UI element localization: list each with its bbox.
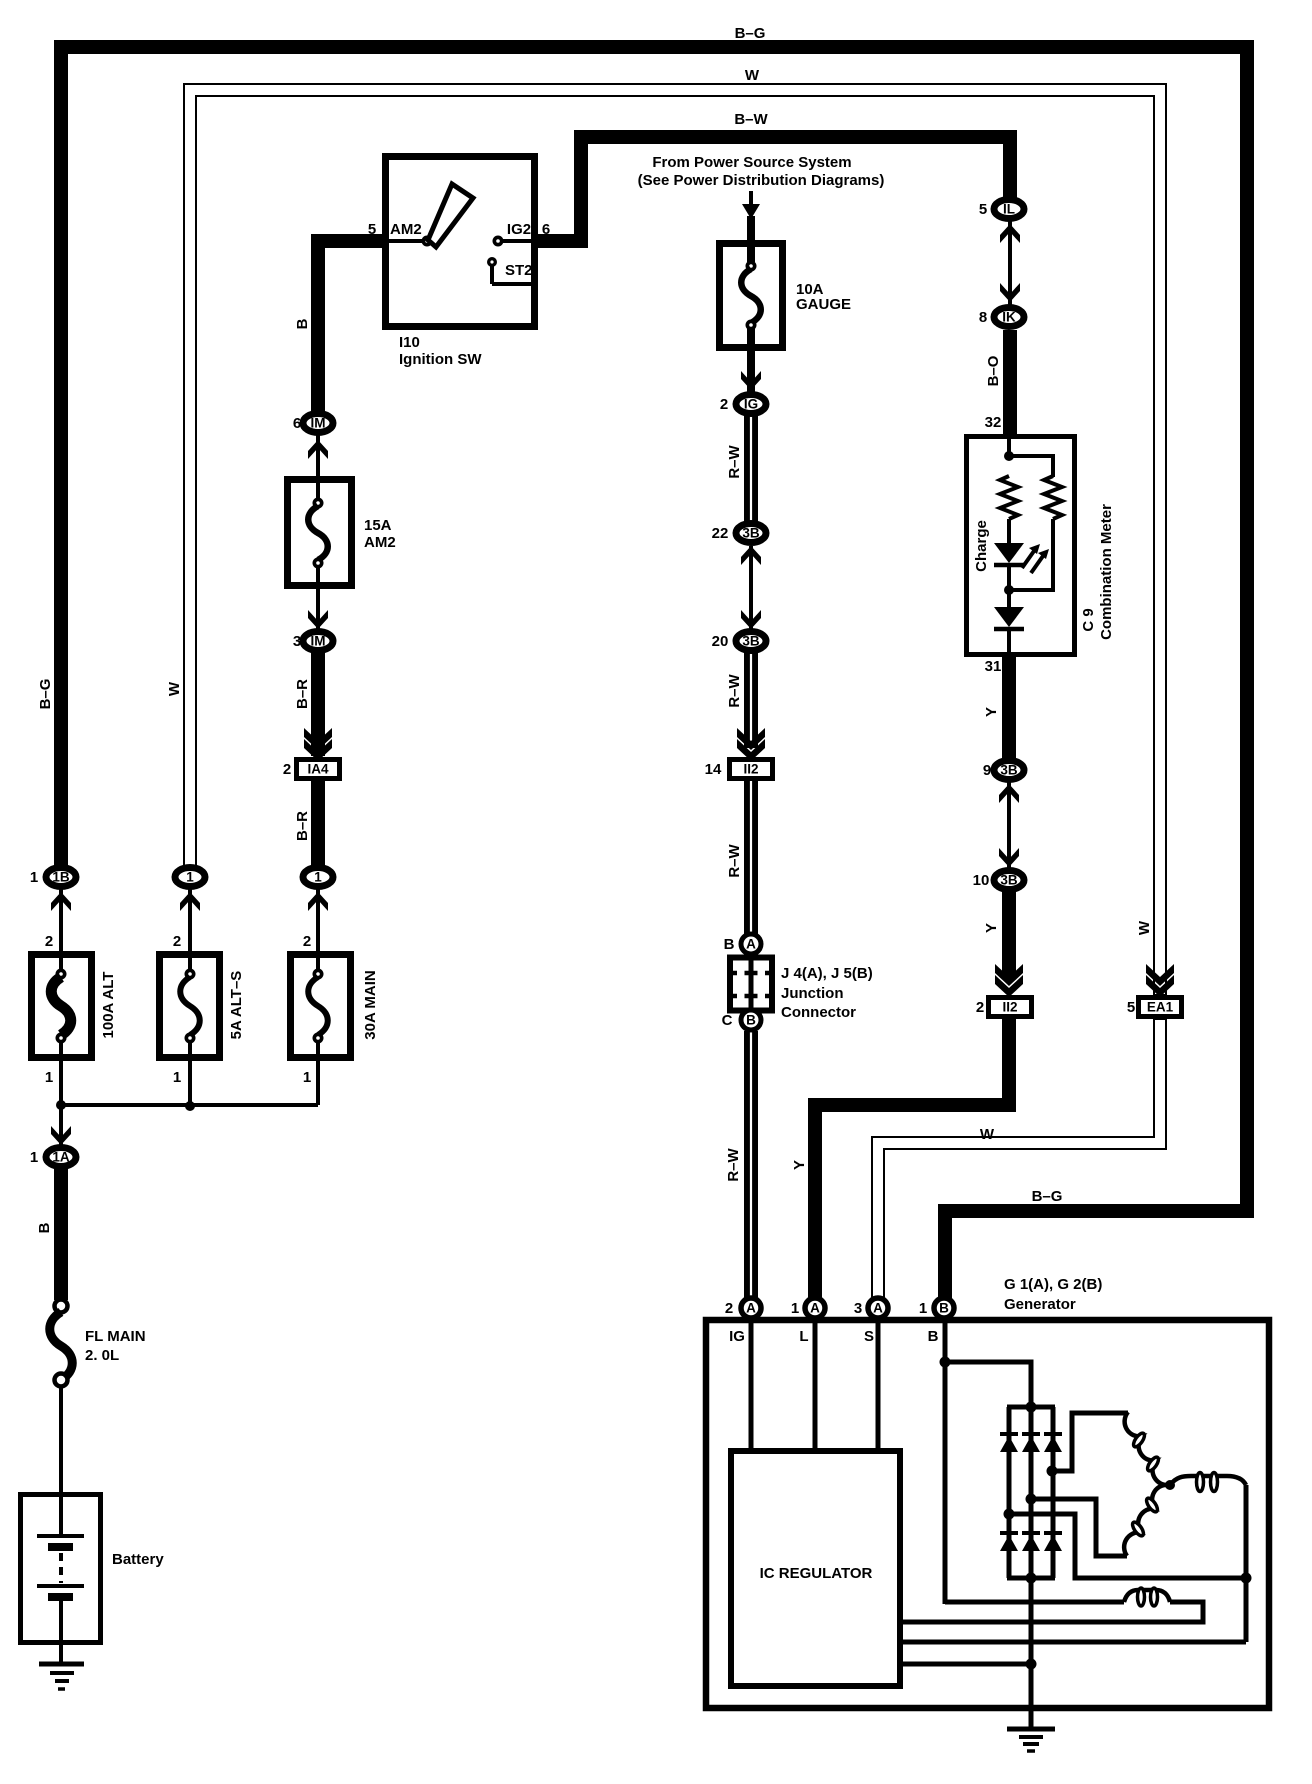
svg-text:1B: 1B	[52, 870, 70, 885]
svg-text:3B: 3B	[1000, 763, 1018, 778]
svg-text:C 9: C 9	[1080, 608, 1097, 631]
svg-text:8: 8	[979, 309, 987, 326]
svg-text:1: 1	[791, 1300, 799, 1317]
svg-text:B–G: B–G	[37, 679, 54, 710]
svg-text:1: 1	[45, 1069, 53, 1086]
svg-text:20: 20	[712, 633, 729, 650]
svg-text:14: 14	[705, 761, 722, 778]
svg-text:C: C	[722, 1012, 733, 1029]
svg-text:2: 2	[976, 999, 984, 1016]
svg-text:W: W	[745, 67, 760, 84]
svg-text:Junction: Junction	[781, 985, 844, 1002]
svg-text:5: 5	[1127, 999, 1135, 1016]
svg-text:B–R: B–R	[294, 679, 311, 709]
svg-text:10: 10	[973, 872, 990, 889]
svg-text:2: 2	[720, 396, 728, 413]
svg-text:9: 9	[983, 762, 991, 779]
svg-text:R–W: R–W	[725, 1147, 742, 1181]
svg-text:EA1: EA1	[1147, 1000, 1174, 1015]
svg-text:B–R: B–R	[294, 811, 311, 841]
svg-text:Combination Meter: Combination Meter	[1098, 504, 1115, 640]
svg-text:B: B	[294, 318, 311, 329]
svg-text:100A ALT: 100A ALT	[100, 972, 117, 1039]
svg-text:ST2: ST2	[505, 262, 533, 279]
svg-text:R–W: R–W	[726, 444, 743, 478]
svg-text:IL: IL	[1003, 202, 1015, 217]
svg-text:A: A	[746, 1301, 756, 1316]
svg-text:W: W	[166, 681, 183, 696]
svg-text:Battery: Battery	[112, 1551, 164, 1568]
svg-text:AM2: AM2	[364, 534, 396, 551]
svg-text:B: B	[939, 1301, 949, 1316]
svg-text:2: 2	[45, 933, 53, 950]
svg-text:II2: II2	[743, 762, 758, 777]
svg-text:S: S	[864, 1328, 874, 1345]
svg-text:L: L	[799, 1328, 808, 1345]
svg-text:3B: 3B	[1000, 873, 1018, 888]
svg-text:R–W: R–W	[726, 843, 743, 877]
svg-text:IG: IG	[729, 1328, 745, 1345]
svg-text:I10: I10	[399, 334, 420, 351]
svg-text:2: 2	[283, 761, 291, 778]
svg-text:1: 1	[303, 1069, 311, 1086]
svg-text:Y: Y	[791, 1160, 808, 1170]
svg-text:1: 1	[186, 870, 194, 885]
svg-text:Generator: Generator	[1004, 1296, 1076, 1313]
svg-text:1: 1	[173, 1069, 181, 1086]
svg-text:W: W	[1136, 920, 1153, 935]
svg-text:B: B	[36, 1222, 53, 1233]
svg-text:II2: II2	[1002, 1000, 1017, 1015]
svg-text:1: 1	[314, 870, 322, 885]
svg-text:2: 2	[725, 1300, 733, 1317]
svg-text:IM: IM	[311, 416, 326, 431]
svg-text:5: 5	[979, 201, 987, 218]
svg-text:B: B	[724, 936, 735, 953]
svg-text:1: 1	[919, 1300, 927, 1317]
svg-text:6: 6	[542, 221, 550, 238]
svg-text:5A ALT–S: 5A ALT–S	[228, 971, 245, 1040]
svg-text:2: 2	[173, 933, 181, 950]
svg-text:A: A	[873, 1301, 883, 1316]
svg-text:Charge: Charge	[973, 520, 990, 572]
svg-text:R–W: R–W	[726, 673, 743, 707]
svg-text:(See Power Distribution Diagra: (See Power Distribution Diagrams)	[638, 172, 885, 189]
svg-text:3: 3	[293, 633, 301, 650]
svg-text:Ignition SW: Ignition SW	[399, 351, 482, 368]
svg-text:3B: 3B	[742, 634, 760, 649]
svg-text:Y: Y	[983, 923, 1000, 933]
svg-text:IC REGULATOR: IC REGULATOR	[760, 1565, 873, 1582]
svg-text:IA4: IA4	[307, 762, 329, 777]
svg-text:IG: IG	[744, 397, 758, 412]
svg-text:B–G: B–G	[1032, 1188, 1063, 1205]
svg-text:A: A	[746, 937, 756, 952]
svg-text:2. 0L: 2. 0L	[85, 1347, 119, 1364]
svg-text:From Power Source System: From Power Source System	[652, 154, 851, 171]
svg-text:IM: IM	[311, 634, 326, 649]
svg-text:30A MAIN: 30A MAIN	[362, 970, 379, 1039]
svg-text:1: 1	[30, 869, 38, 886]
svg-text:Connector: Connector	[781, 1004, 856, 1021]
svg-text:G 1(A), G 2(B): G 1(A), G 2(B)	[1004, 1276, 1102, 1293]
svg-text:B–O: B–O	[985, 355, 1002, 386]
svg-text:GAUGE: GAUGE	[796, 296, 851, 313]
svg-text:3: 3	[854, 1300, 862, 1317]
svg-text:22: 22	[712, 525, 729, 542]
svg-text:B: B	[928, 1328, 939, 1345]
svg-text:6: 6	[293, 415, 301, 432]
svg-text:1: 1	[30, 1149, 38, 1166]
svg-text:B–G: B–G	[735, 25, 766, 42]
svg-text:2: 2	[303, 933, 311, 950]
svg-text:W: W	[980, 1126, 995, 1143]
svg-text:B: B	[746, 1013, 756, 1028]
svg-text:1A: 1A	[52, 1150, 70, 1165]
svg-text:15A: 15A	[364, 517, 392, 534]
svg-text:32: 32	[985, 414, 1002, 431]
svg-text:3B: 3B	[742, 526, 760, 541]
svg-text:AM2: AM2	[390, 221, 422, 238]
svg-text:IK: IK	[1002, 310, 1016, 325]
svg-text:J 4(A), J 5(B): J 4(A), J 5(B)	[781, 965, 873, 982]
svg-text:Y: Y	[983, 707, 1000, 717]
svg-text:B–W: B–W	[734, 111, 768, 128]
svg-text:5: 5	[368, 221, 376, 238]
svg-text:IG2: IG2	[507, 221, 531, 238]
svg-text:FL MAIN: FL MAIN	[85, 1328, 146, 1345]
svg-text:A: A	[810, 1301, 820, 1316]
svg-text:31: 31	[985, 658, 1002, 675]
